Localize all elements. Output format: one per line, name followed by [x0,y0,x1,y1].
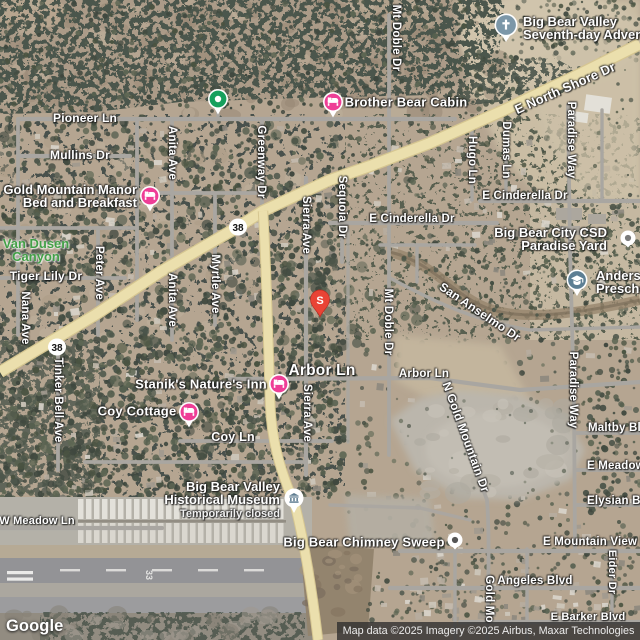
svg-text:S: S [316,295,323,307]
svg-text:38: 38 [232,223,244,234]
svg-text:38: 38 [51,343,63,354]
